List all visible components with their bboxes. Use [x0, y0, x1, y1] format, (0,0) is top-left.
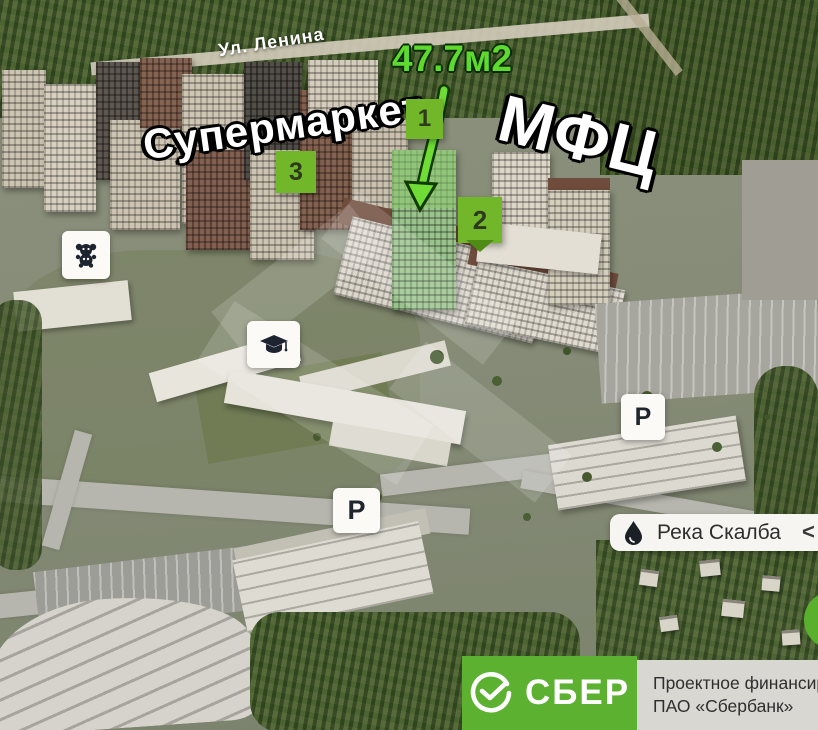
tower [44, 84, 96, 212]
river-card[interactable]: Река Скалба < [610, 514, 818, 551]
water-drop-icon [624, 520, 643, 545]
parking-icon: P [635, 403, 652, 432]
parking-marker-south[interactable]: P [333, 488, 380, 533]
aerial-masterplan-view: Ул. Ленина 47.7м2 Супермаркет МФЦ 1 2 3 [0, 0, 818, 730]
village-house [699, 559, 721, 577]
kindergarten-marker[interactable] [62, 231, 110, 279]
building-badge-1[interactable]: 1 [406, 99, 443, 139]
graduation-cap-icon [259, 333, 289, 357]
paved-area-right [742, 160, 818, 300]
parking-marker-east[interactable]: P [621, 394, 665, 440]
village-house [639, 569, 659, 587]
apartment-area-label: 47.7м2 [392, 38, 512, 80]
chevron-left-icon[interactable]: < [802, 519, 815, 545]
building-badge-2[interactable]: 2 [458, 197, 502, 243]
teddy-bear-icon [73, 242, 99, 268]
parking-icon: P [347, 495, 365, 526]
village-house [659, 615, 679, 632]
school-marker[interactable] [247, 321, 300, 368]
village-house [781, 629, 800, 645]
sber-logo-block: СБЕР [462, 656, 637, 730]
village-house [721, 599, 745, 618]
financing-line-1: Проектное финансирование [653, 672, 818, 695]
sber-financing-block: Проектное финансирование ПАО «Сбербанк» [637, 660, 818, 730]
sber-check-icon [469, 671, 513, 715]
river-label: Река Скалба [657, 521, 781, 545]
forest-left-edge [0, 300, 42, 570]
sber-brand-text: СБЕР [525, 673, 630, 713]
tower [2, 70, 46, 188]
village-house [761, 575, 780, 592]
building-badge-3[interactable]: 3 [276, 151, 316, 193]
financing-line-2: ПАО «Сбербанк» [653, 695, 818, 718]
